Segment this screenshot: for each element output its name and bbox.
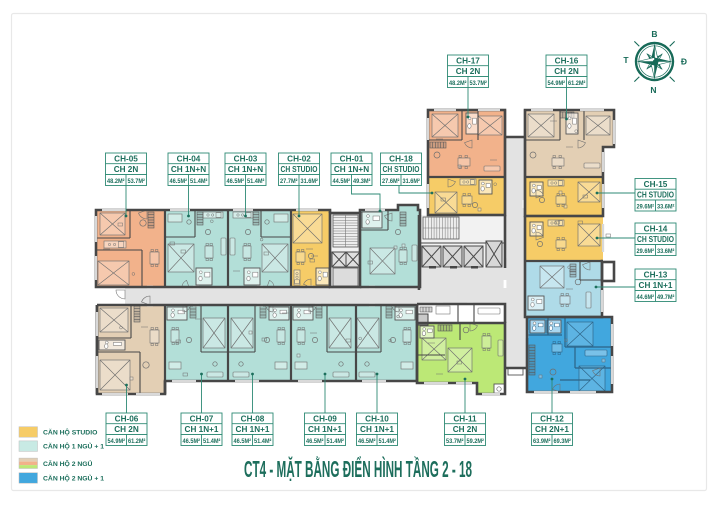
svg-text:46.5M²: 46.5M² xyxy=(358,438,376,445)
svg-text:54.9M²: 54.9M² xyxy=(108,438,126,445)
svg-text:51.4M²: 51.4M² xyxy=(190,178,208,185)
svg-text:31.6M²: 31.6M² xyxy=(300,178,318,185)
svg-text:51.4M²: 51.4M² xyxy=(254,438,272,445)
svg-text:46.5M²: 46.5M² xyxy=(306,438,324,445)
svg-text:CĂN HỘ 2 NGỦ + 1: CĂN HỘ 2 NGỦ + 1 xyxy=(43,474,104,483)
svg-text:53.7M²: 53.7M² xyxy=(469,80,487,87)
svg-text:CH-07: CH-07 xyxy=(190,414,214,423)
svg-text:CH-11: CH-11 xyxy=(453,414,477,423)
svg-text:CH-06: CH-06 xyxy=(115,414,139,423)
svg-text:CH 1N+N: CH 1N+N xyxy=(228,165,263,174)
svg-text:CT4 - MẶT BẰNG ĐIỂN HÌNH TẦNG: CT4 - MẶT BẰNG ĐIỂN HÌNH TẦNG 2 - 18 xyxy=(244,455,472,482)
svg-text:CH 1N+1: CH 1N+1 xyxy=(308,425,342,434)
svg-text:CH-12: CH-12 xyxy=(540,414,564,423)
svg-text:49.3M²: 49.3M² xyxy=(353,178,371,185)
svg-text:CH-09: CH-09 xyxy=(313,414,337,423)
svg-text:CH 2N+1: CH 2N+1 xyxy=(535,425,569,434)
svg-text:CH-17: CH-17 xyxy=(456,56,480,65)
svg-text:46.5M²: 46.5M² xyxy=(227,178,245,185)
svg-text:CĂN HỘ 2 NGỦ: CĂN HỘ 2 NGỦ xyxy=(43,459,93,468)
svg-text:CH STUDIO: CH STUDIO xyxy=(281,165,319,174)
svg-text:48.2M²: 48.2M² xyxy=(107,178,125,185)
svg-text:CH 2N: CH 2N xyxy=(453,425,478,434)
svg-text:54.9M²: 54.9M² xyxy=(548,80,566,87)
svg-text:46.5M²: 46.5M² xyxy=(170,178,188,185)
svg-text:CH 1N+1: CH 1N+1 xyxy=(236,425,270,434)
svg-text:CH-08: CH-08 xyxy=(241,414,265,423)
svg-text:46.5M²: 46.5M² xyxy=(183,438,201,445)
svg-text:CH-01: CH-01 xyxy=(340,154,364,163)
svg-text:27.6M²: 27.6M² xyxy=(382,178,400,185)
svg-text:33.6M²: 33.6M² xyxy=(657,248,675,255)
svg-text:CH-16: CH-16 xyxy=(555,56,579,65)
svg-text:51.4M²: 51.4M² xyxy=(247,178,265,185)
svg-text:CH-10: CH-10 xyxy=(365,414,389,423)
svg-text:CH-04: CH-04 xyxy=(177,154,201,163)
svg-text:CH 2N: CH 2N xyxy=(554,67,579,76)
svg-text:48.2M²: 48.2M² xyxy=(449,80,467,87)
svg-text:CH-18: CH-18 xyxy=(389,154,413,163)
svg-text:CH-05: CH-05 xyxy=(114,154,138,163)
svg-text:T: T xyxy=(623,55,629,65)
svg-text:CH 1N+1: CH 1N+1 xyxy=(360,425,394,434)
svg-text:51.4M²: 51.4M² xyxy=(326,438,344,445)
svg-text:CH 1N+N: CH 1N+N xyxy=(334,165,369,174)
svg-text:CH 2N: CH 2N xyxy=(456,67,481,76)
svg-text:CH 1N+N: CH 1N+N xyxy=(171,165,206,174)
svg-text:CH STUDIO: CH STUDIO xyxy=(637,191,675,200)
svg-text:CĂN HỘ STUDIO: CĂN HỘ STUDIO xyxy=(43,428,97,437)
svg-text:B: B xyxy=(651,29,657,39)
svg-text:61.2M²: 61.2M² xyxy=(128,438,146,445)
svg-text:CH 2N: CH 2N xyxy=(114,165,139,174)
svg-text:29.6M²: 29.6M² xyxy=(637,203,655,210)
svg-text:51.4M²: 51.4M² xyxy=(378,438,396,445)
svg-text:CH 2N: CH 2N xyxy=(114,425,139,434)
svg-text:CH STUDIO: CH STUDIO xyxy=(383,165,421,174)
svg-text:53.7M²: 53.7M² xyxy=(446,438,464,445)
svg-text:29.6M²: 29.6M² xyxy=(637,248,655,255)
svg-text:44.6M²: 44.6M² xyxy=(637,294,655,301)
svg-text:44.5M²: 44.5M² xyxy=(333,178,351,185)
svg-text:CH-15: CH-15 xyxy=(644,180,668,189)
svg-text:31.6M²: 31.6M² xyxy=(402,178,420,185)
svg-text:53.7M²: 53.7M² xyxy=(127,178,145,185)
svg-text:51.4M²: 51.4M² xyxy=(203,438,221,445)
svg-text:CĂN HỘ 1 NGỦ + 1: CĂN HỘ 1 NGỦ + 1 xyxy=(43,442,104,451)
svg-text:69.3M²: 69.3M² xyxy=(553,438,571,445)
svg-text:CH 1N+1: CH 1N+1 xyxy=(185,425,219,434)
svg-text:CH-13: CH-13 xyxy=(644,270,668,279)
svg-text:61.2M²: 61.2M² xyxy=(568,80,586,87)
svg-text:49.7M²: 49.7M² xyxy=(657,294,675,301)
svg-text:63.9M²: 63.9M² xyxy=(533,438,551,445)
svg-text:CH-14: CH-14 xyxy=(644,224,668,233)
svg-text:N: N xyxy=(650,85,656,95)
svg-text:CH STUDIO: CH STUDIO xyxy=(637,235,675,244)
svg-text:CH 1N+1: CH 1N+1 xyxy=(639,281,673,290)
svg-text:Đ: Đ xyxy=(681,57,687,67)
svg-text:CH-03: CH-03 xyxy=(234,154,258,163)
svg-text:CH-02: CH-02 xyxy=(287,154,311,163)
svg-text:46.5M²: 46.5M² xyxy=(234,438,252,445)
svg-text:59.2M²: 59.2M² xyxy=(466,438,484,445)
svg-text:27.7M²: 27.7M² xyxy=(280,178,298,185)
svg-text:33.6M²: 33.6M² xyxy=(657,203,675,210)
